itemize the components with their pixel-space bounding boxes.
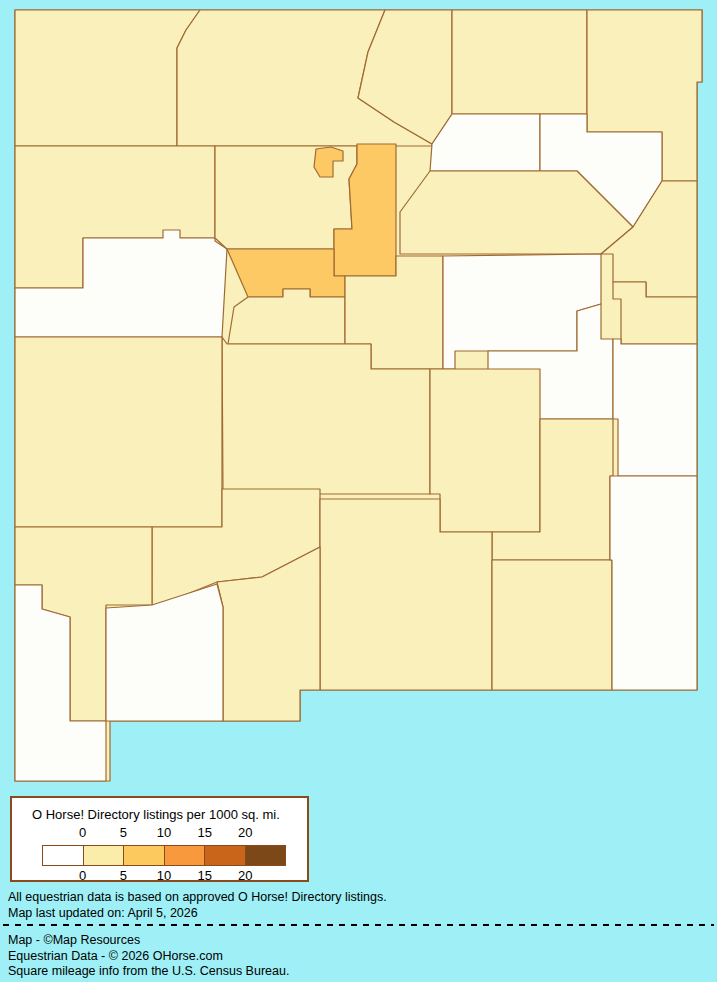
dashed-divider xyxy=(3,924,714,926)
county-catron xyxy=(15,337,222,527)
county-lincoln xyxy=(430,369,540,532)
legend-swatch-3 xyxy=(165,846,206,865)
county-mora xyxy=(430,114,540,171)
legend-tick-label: 0 xyxy=(79,868,86,883)
data-disclaimer-note: All equestrian data is based on approved… xyxy=(8,890,387,904)
legend-tick-label: 15 xyxy=(197,825,211,840)
legend-box: O Horse! Directory listings per 1000 sq.… xyxy=(10,796,309,882)
county-lea xyxy=(610,476,697,690)
last-updated-note: Map last updated on: April 5, 2026 xyxy=(8,906,198,920)
county-san-juan xyxy=(15,10,200,146)
legend-tick-label: 20 xyxy=(238,868,252,883)
census-credit: Square mileage info from the U.S. Census… xyxy=(8,964,289,978)
new-mexico-county-map xyxy=(0,0,717,790)
legend-color-ramp xyxy=(42,845,286,866)
legend-title: O Horse! Directory listings per 1000 sq.… xyxy=(32,807,280,822)
county-colfax xyxy=(452,10,587,114)
legend-swatch-5 xyxy=(246,846,286,865)
legend-tick-label: 15 xyxy=(197,868,211,883)
county-roosevelt xyxy=(613,339,697,476)
legend-swatch-1 xyxy=(84,846,125,865)
map-credit: Map - ©Map Resources xyxy=(8,933,140,947)
legend-tick-label: 0 xyxy=(79,825,86,840)
legend-tick-label: 5 xyxy=(120,825,127,840)
legend-tick-label: 20 xyxy=(238,825,252,840)
legend-swatch-4 xyxy=(205,846,246,865)
legend-swatch-2 xyxy=(124,846,165,865)
legend-tick-label: 5 xyxy=(120,868,127,883)
legend-tick-label: 10 xyxy=(157,868,171,883)
legend-tick-label: 10 xyxy=(157,825,171,840)
county-eddy xyxy=(492,560,612,690)
legend-swatch-0 xyxy=(43,846,84,865)
data-credit: Equestrian Data - © 2026 OHorse.com xyxy=(8,949,223,963)
